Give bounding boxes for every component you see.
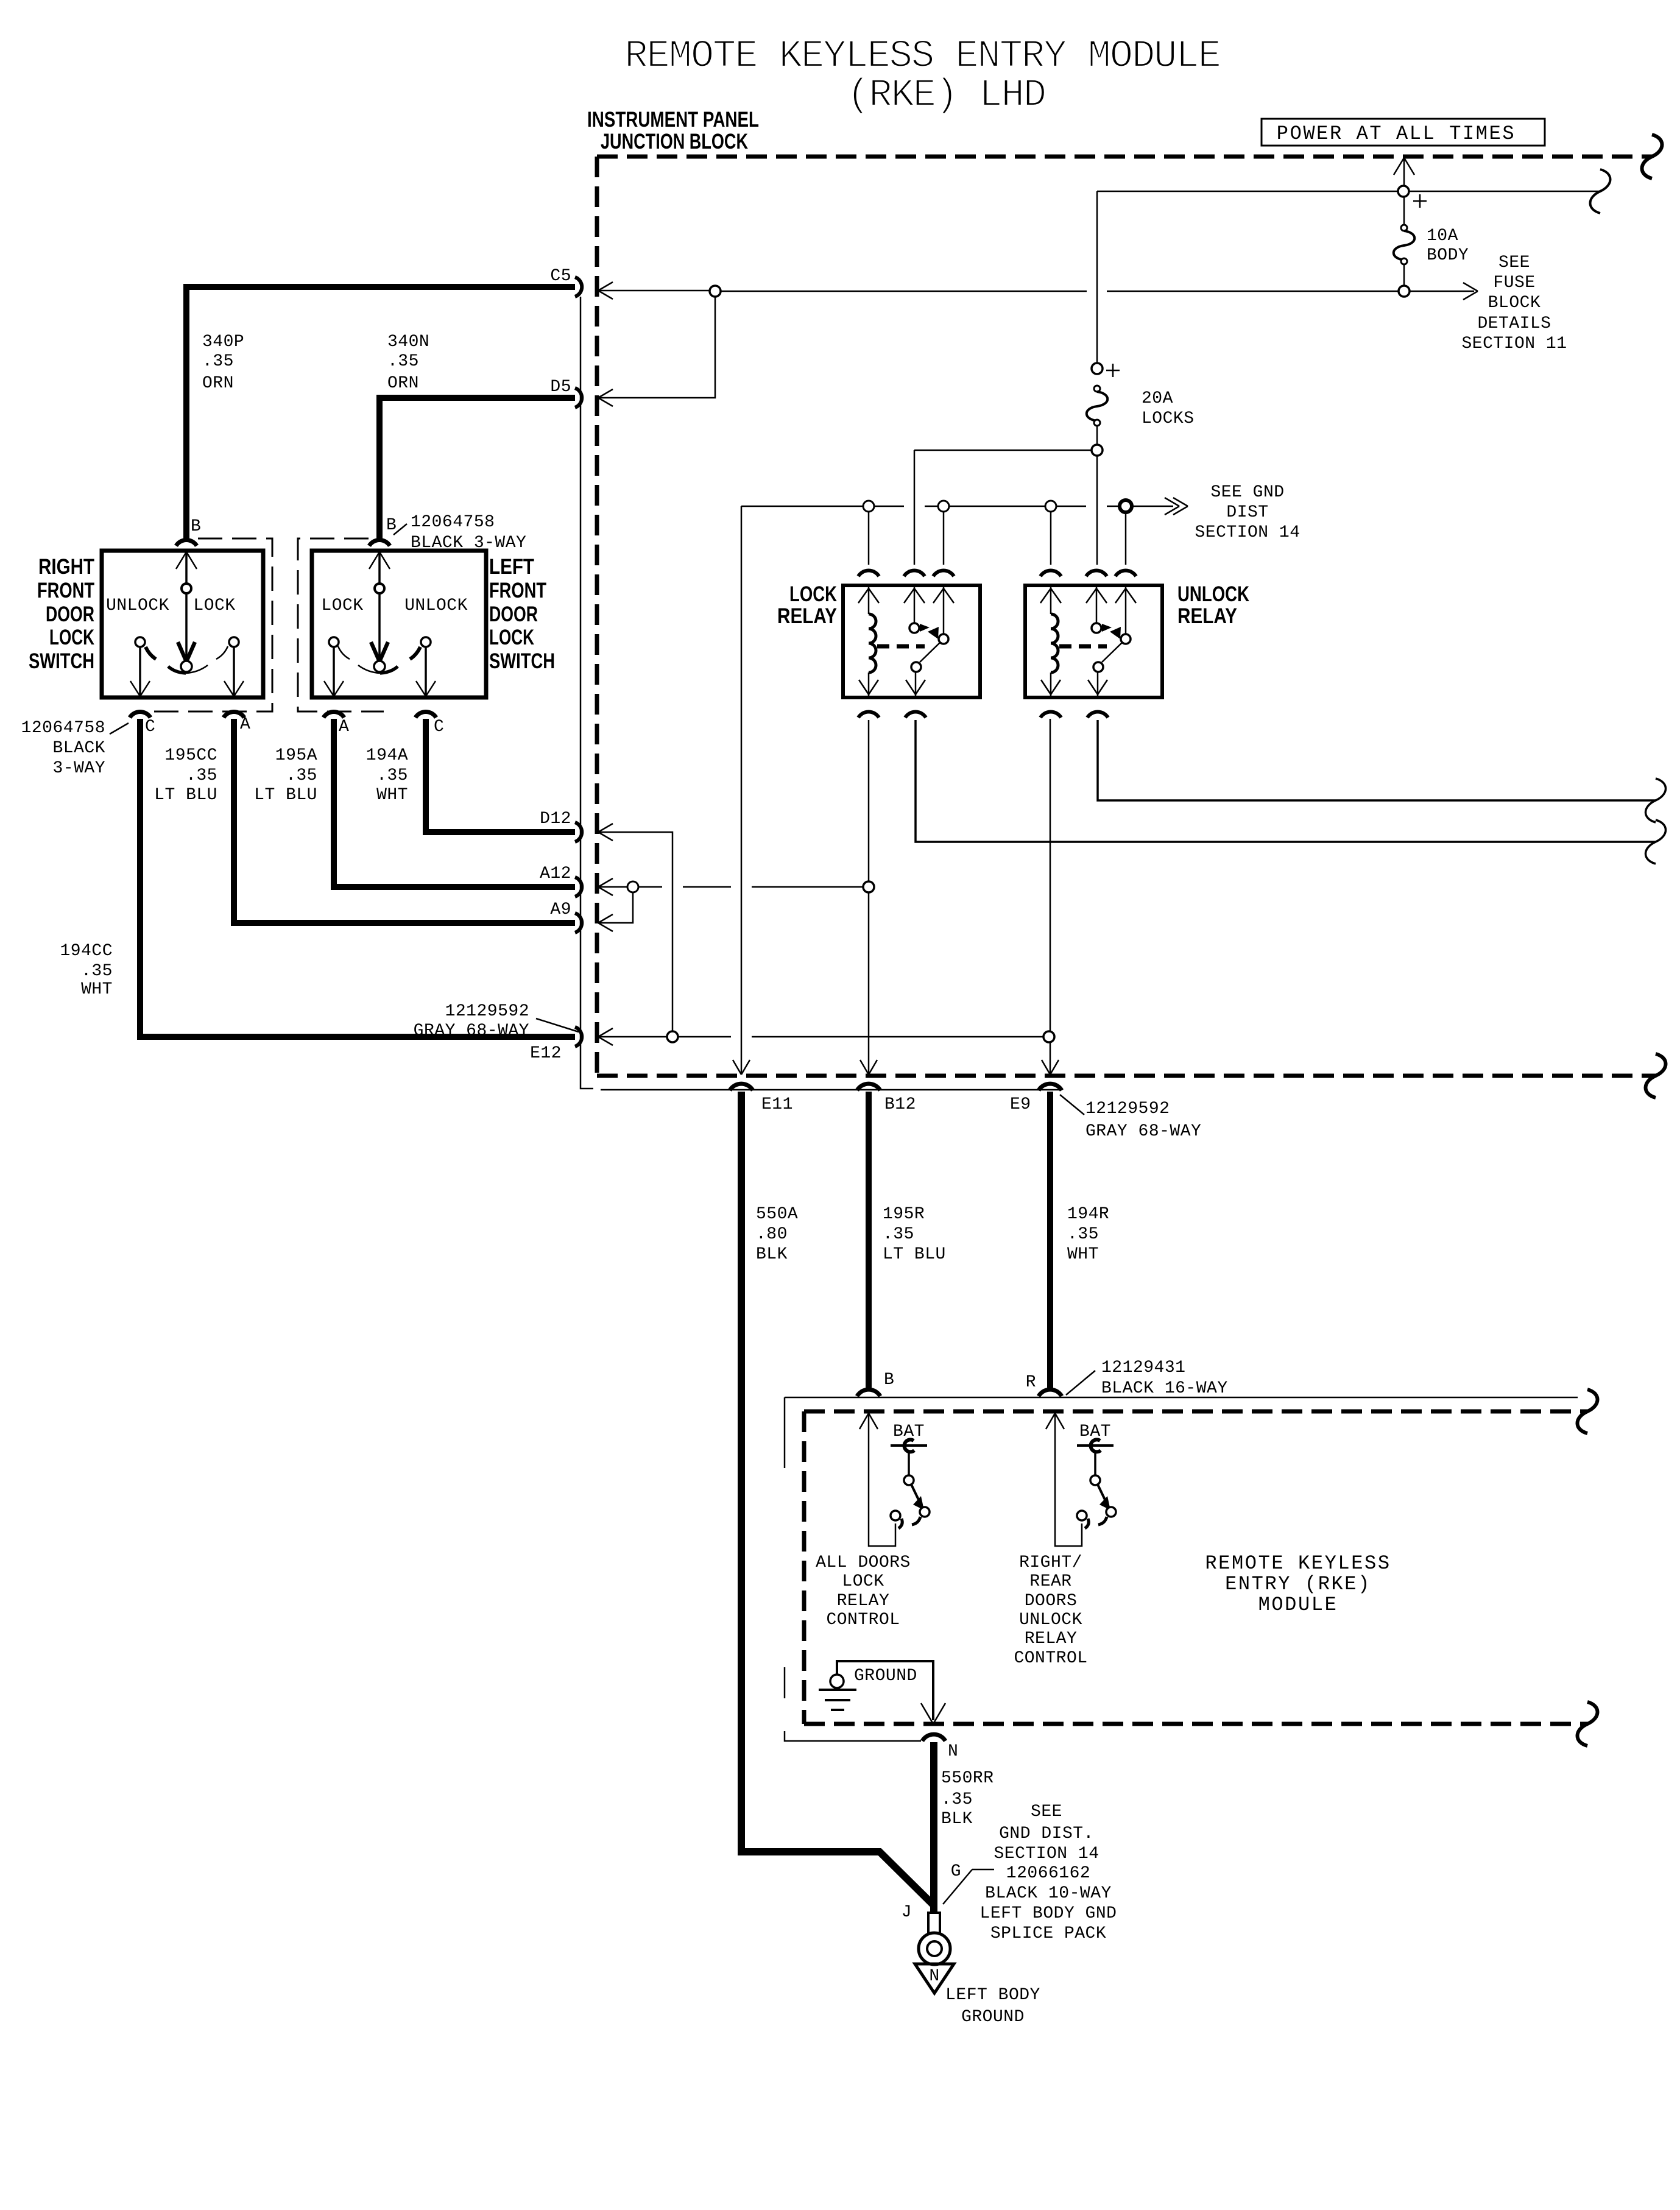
svg-text:POWER AT ALL TIMES: POWER AT ALL TIMES [1277, 122, 1516, 145]
svg-text:INSTRUMENT PANEL: INSTRUMENT PANEL [587, 108, 759, 132]
svg-text:B: B [191, 517, 201, 536]
svg-text:SECTION 14: SECTION 14 [994, 1845, 1099, 1863]
svg-text:LT BLU: LT BLU [154, 786, 217, 805]
svg-text:N: N [929, 1967, 939, 1986]
svg-text:SECTION 14: SECTION 14 [1195, 523, 1300, 542]
svg-text:C: C [145, 718, 155, 736]
svg-text:RELAY: RELAY [837, 1592, 890, 1611]
svg-text:RIGHT: RIGHT [38, 555, 94, 579]
svg-text:GROUND: GROUND [961, 2008, 1025, 2027]
svg-text:GRAY 68-WAY: GRAY 68-WAY [1085, 1122, 1201, 1141]
svg-text:REMOTE KEYLESS: REMOTE KEYLESS [1205, 1552, 1391, 1575]
svg-text:D12: D12 [540, 810, 571, 828]
svg-text:UNLOCK: UNLOCK [1019, 1611, 1082, 1629]
svg-text:A: A [339, 718, 349, 736]
svg-text:12064758: 12064758 [21, 719, 105, 738]
svg-text:194CC: 194CC [60, 942, 113, 961]
svg-text:LOCK: LOCK [193, 596, 235, 615]
svg-text:ORN: ORN [387, 374, 419, 393]
svg-text:194A: 194A [366, 746, 408, 765]
svg-text:E11: E11 [761, 1095, 793, 1114]
svg-text:340P: 340P [202, 333, 244, 351]
svg-text:B12: B12 [884, 1095, 916, 1114]
svg-text:DIST: DIST [1226, 503, 1268, 522]
svg-text:GND DIST.: GND DIST. [999, 1824, 1094, 1843]
svg-text:DOOR: DOOR [489, 602, 538, 626]
svg-text:.35: .35 [941, 1790, 973, 1809]
svg-text:CONTROL: CONTROL [826, 1611, 900, 1629]
svg-text:12129431: 12129431 [1101, 1358, 1185, 1377]
svg-text:SEE GND: SEE GND [1210, 483, 1284, 502]
svg-text:BLACK 10-WAY: BLACK 10-WAY [985, 1884, 1112, 1903]
svg-text:.35: .35 [202, 352, 234, 371]
svg-text:UNLOCK: UNLOCK [106, 596, 169, 615]
svg-text:E12: E12 [530, 1044, 562, 1063]
svg-text:12129592: 12129592 [445, 1002, 529, 1021]
svg-text:195A: 195A [275, 746, 317, 765]
svg-text:D5: D5 [550, 378, 571, 397]
svg-text:DOOR: DOOR [46, 602, 94, 626]
svg-text:A12: A12 [540, 864, 571, 883]
svg-text:550A: 550A [756, 1205, 798, 1224]
svg-text:SEE: SEE [1498, 253, 1530, 272]
svg-text:G: G [951, 1862, 961, 1881]
svg-text:A9: A9 [550, 900, 571, 919]
svg-text:B: B [884, 1371, 894, 1389]
svg-text:12129592: 12129592 [1085, 1100, 1170, 1118]
svg-text:J: J [902, 1903, 912, 1922]
svg-text:.35: .35 [883, 1225, 914, 1244]
svg-text:BLACK 16-WAY: BLACK 16-WAY [1101, 1379, 1228, 1398]
svg-text:.80: .80 [756, 1225, 788, 1244]
svg-text:B: B [386, 516, 397, 535]
svg-text:REAR: REAR [1029, 1572, 1071, 1591]
svg-text:.35: .35 [186, 766, 217, 785]
svg-text:BLOCK: BLOCK [1488, 294, 1541, 312]
svg-text:LEFT: LEFT [489, 555, 534, 579]
svg-text:340N: 340N [387, 333, 429, 351]
svg-text:C: C [434, 718, 444, 736]
svg-text:CONTROL: CONTROL [1014, 1649, 1087, 1668]
svg-text:LOCK: LOCK [489, 626, 534, 649]
svg-text:RELAY: RELAY [1025, 1629, 1078, 1648]
svg-text:ALL DOORS: ALL DOORS [816, 1553, 911, 1572]
svg-text:RELAY: RELAY [1177, 604, 1237, 628]
svg-text:FRONT: FRONT [37, 579, 94, 602]
svg-text:194R: 194R [1067, 1205, 1109, 1224]
svg-text:BLK: BLK [941, 1810, 973, 1829]
svg-text:BLK: BLK [756, 1245, 788, 1264]
svg-text:N: N [948, 1742, 958, 1761]
svg-text:.35: .35 [1067, 1225, 1099, 1244]
svg-text:LT BLU: LT BLU [254, 786, 317, 805]
svg-text:E9: E9 [1010, 1095, 1031, 1114]
svg-text:12064758: 12064758 [411, 513, 495, 532]
svg-text:DOORS: DOORS [1025, 1592, 1078, 1611]
svg-text:A: A [240, 715, 250, 734]
svg-text:BODY: BODY [1427, 246, 1469, 265]
svg-text:(RKE) LHD: (RKE) LHD [847, 74, 1045, 118]
svg-text:R: R [1026, 1373, 1036, 1392]
svg-text:195R: 195R [883, 1205, 925, 1224]
svg-text:FRONT: FRONT [489, 579, 546, 602]
svg-text:LOCK: LOCK [789, 582, 837, 606]
svg-text:SEE: SEE [1031, 1802, 1062, 1821]
svg-text:20A: 20A [1142, 389, 1173, 408]
svg-text:LOCK: LOCK [842, 1572, 884, 1591]
svg-text:.35: .35 [376, 766, 408, 785]
svg-text:LEFT BODY GND: LEFT BODY GND [980, 1904, 1117, 1923]
svg-text:LOCKS: LOCKS [1142, 409, 1195, 428]
svg-text:DETAILS: DETAILS [1477, 314, 1551, 333]
svg-text:SECTION 11: SECTION 11 [1461, 334, 1567, 353]
svg-text:BLACK: BLACK [52, 739, 105, 758]
svg-text:C5: C5 [550, 267, 571, 286]
svg-text:JUNCTION BLOCK: JUNCTION BLOCK [601, 130, 748, 154]
svg-text:ORN: ORN [202, 374, 234, 393]
svg-text:LOCK: LOCK [49, 626, 94, 649]
svg-text:SWITCH: SWITCH [489, 649, 555, 673]
svg-text:WHT: WHT [1067, 1245, 1099, 1264]
svg-text:10A: 10A [1427, 227, 1458, 245]
svg-text:LEFT BODY: LEFT BODY [945, 1986, 1040, 2005]
svg-text:.35: .35 [387, 352, 419, 371]
svg-text:.35: .35 [81, 962, 113, 981]
svg-text:REMOTE KEYLESS ENTRY MODULE: REMOTE KEYLESS ENTRY MODULE [624, 35, 1220, 79]
svg-text:FUSE: FUSE [1493, 274, 1535, 292]
svg-text:SWITCH: SWITCH [29, 649, 94, 673]
svg-text:RELAY: RELAY [777, 604, 837, 628]
svg-text:UNLOCK: UNLOCK [404, 596, 468, 615]
svg-text:MODULE: MODULE [1258, 1594, 1338, 1616]
svg-text:550RR: 550RR [941, 1769, 994, 1788]
svg-text:GROUND: GROUND [854, 1667, 917, 1686]
svg-text:12066162: 12066162 [1006, 1864, 1090, 1883]
svg-text:UNLOCK: UNLOCK [1177, 582, 1249, 606]
svg-text:RIGHT/: RIGHT/ [1019, 1553, 1082, 1572]
svg-text:3-WAY: 3-WAY [52, 759, 105, 778]
svg-text:LOCK: LOCK [321, 596, 363, 615]
svg-text:ENTRY (RKE): ENTRY (RKE) [1225, 1573, 1371, 1595]
svg-text:195CC: 195CC [164, 746, 217, 765]
svg-text:WHT: WHT [376, 786, 408, 805]
svg-text:WHT: WHT [81, 980, 113, 999]
svg-text:.35: .35 [286, 766, 317, 785]
svg-text:SPLICE PACK: SPLICE PACK [990, 1924, 1106, 1943]
svg-text:LT BLU: LT BLU [883, 1245, 946, 1264]
